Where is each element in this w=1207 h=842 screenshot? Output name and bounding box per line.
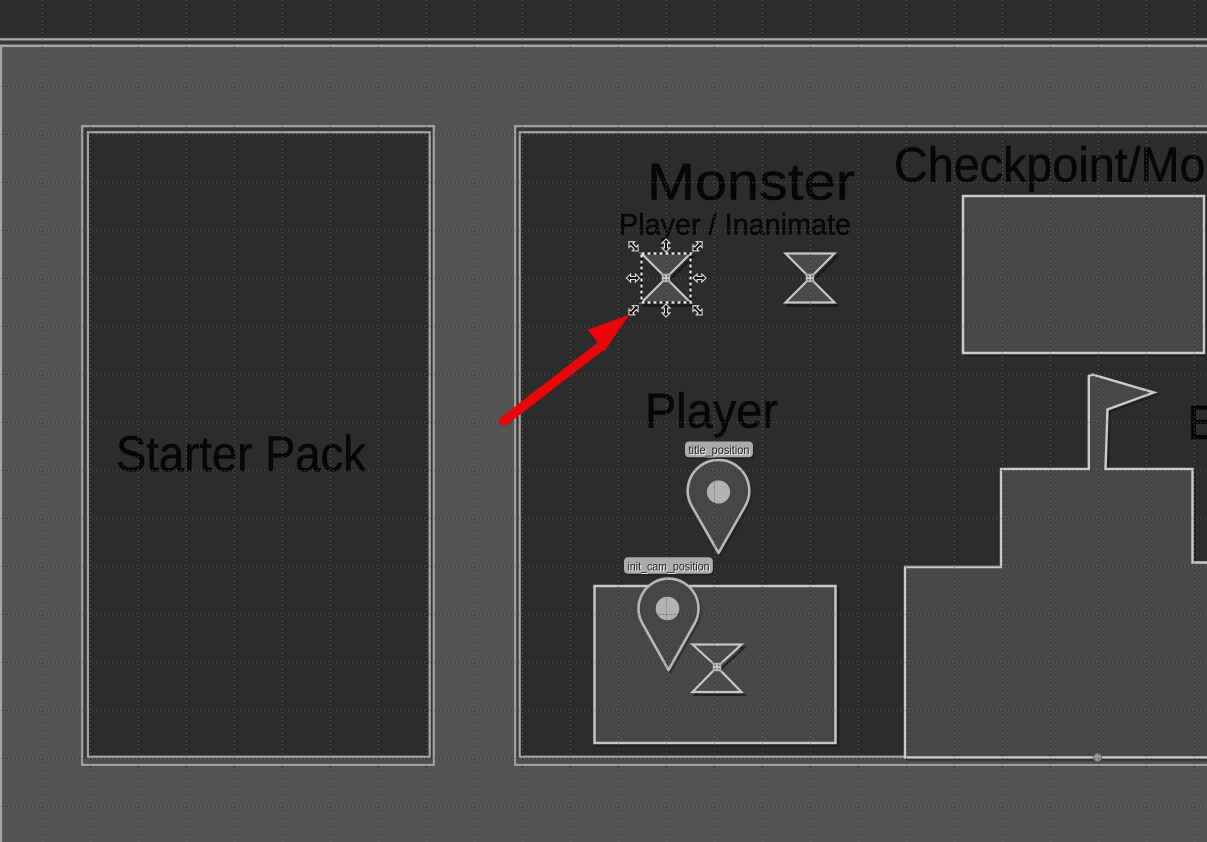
svg-text:Player: Player (645, 385, 778, 439)
svg-text:Monster: Monster (647, 153, 855, 211)
svg-text:Starter Pack: Starter Pack (116, 426, 367, 482)
svg-text:init_cam_position: init_cam_position (628, 560, 710, 574)
svg-text:End: End (1187, 397, 1207, 450)
svg-text:title_position: title_position (689, 443, 750, 457)
svg-text:Player / Inanimate: Player / Inanimate (619, 209, 851, 242)
svg-text:Checkpoint/Mo: Checkpoint/Mo (894, 139, 1206, 193)
